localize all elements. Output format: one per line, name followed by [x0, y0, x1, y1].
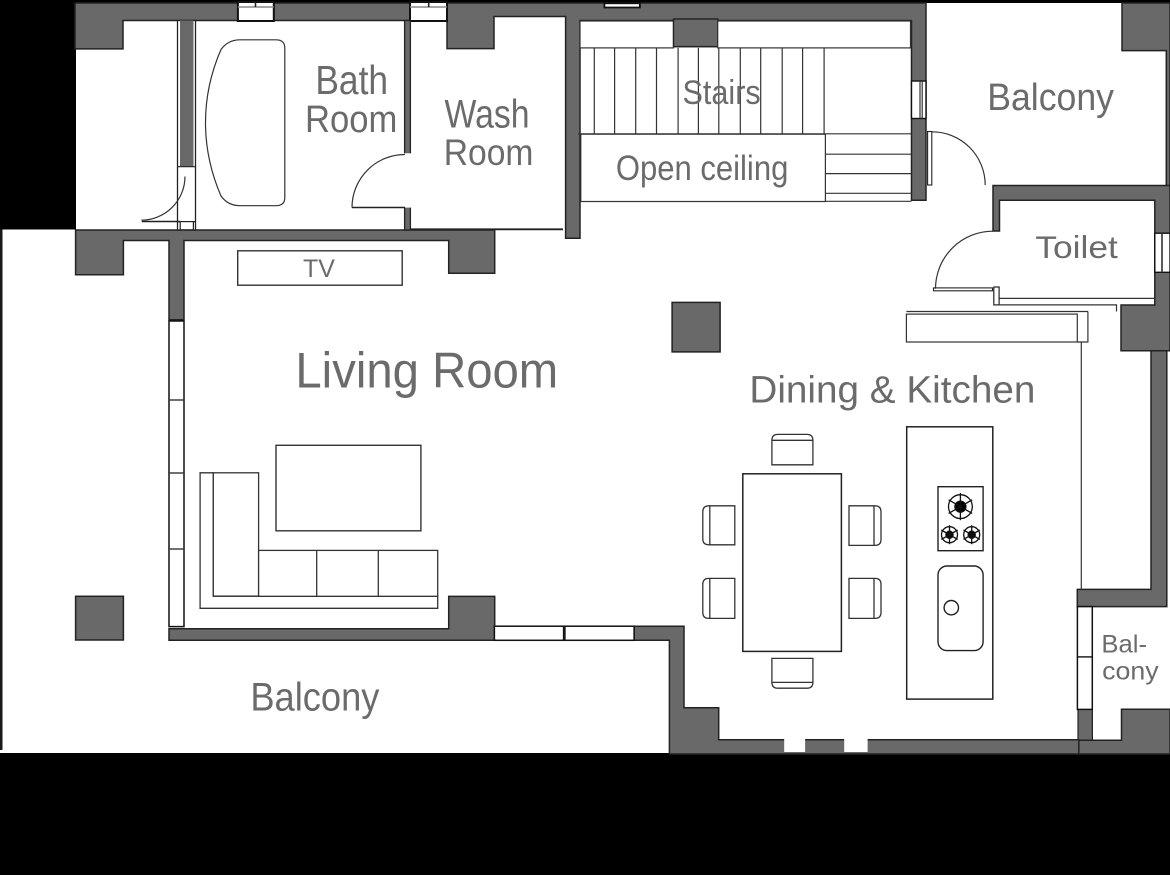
svg-text:Stairs: Stairs [683, 74, 761, 112]
svg-text:Toilet: Toilet [1035, 230, 1118, 265]
svg-text:Dining & Kitchen: Dining & Kitchen [749, 369, 1035, 411]
svg-text:Open ceiling: Open ceiling [616, 148, 789, 188]
svg-text:Room: Room [305, 99, 397, 141]
svg-text:Wash: Wash [444, 92, 529, 136]
svg-text:Room: Room [444, 132, 534, 173]
svg-text:Bal-: Bal- [1101, 630, 1147, 658]
svg-text:Balcony: Balcony [987, 76, 1114, 118]
svg-text:cony: cony [1102, 658, 1159, 686]
svg-text:Living Room: Living Room [295, 343, 558, 399]
svg-text:Bath: Bath [315, 57, 388, 103]
svg-text:Balcony: Balcony [250, 675, 379, 719]
svg-text:TV: TV [303, 255, 335, 283]
